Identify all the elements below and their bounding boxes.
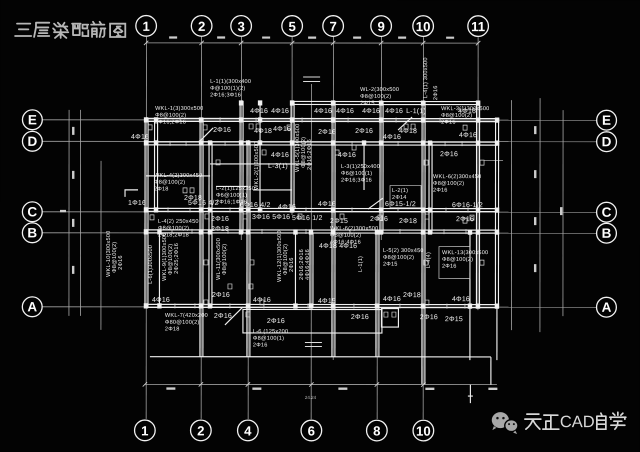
svg-text:L-5(2) 300x450: L-5(2) 300x450 [383,247,424,254]
svg-text:2Φ16: 2Φ16 [253,343,268,349]
svg-text:Φ6@100(1): Φ6@100(1) [216,192,247,199]
svg-text:L-2(1)125x350: L-2(1)125x350 [216,185,255,192]
svg-text:L-6 (125x200: L-6 (125x200 [253,328,288,335]
svg-text:Φ6@100(1): Φ6@100(1) [341,170,372,177]
svg-text:4Φ16: 4Φ16 [314,108,332,115]
svg-text:WKL-2(1)300x500: WKL-2(1)300x500 [253,142,260,190]
svg-text:4Φ16: 4Φ16 [152,297,170,304]
svg-text:L-4(2) 250x450: L-4(2) 250x450 [158,218,199,225]
svg-text:2Φ16;3Φ16: 2Φ16;3Φ16 [341,178,372,184]
svg-text:WL-2(300x500: WL-2(300x500 [360,86,399,93]
svg-text:2Φ16: 2Φ16 [289,257,295,272]
svg-text:2Φ16;2Φ16: 2Φ16;2Φ16 [307,139,313,170]
svg-text:2Φ16: 2Φ16 [267,318,285,325]
svg-text:Φ8@100(2): Φ8@100(2) [330,232,361,239]
svg-text:6Φ16-1/2: 6Φ16-1/2 [452,201,483,209]
svg-text:Φ@100(1)(2): Φ@100(1)(2) [210,85,245,92]
svg-text:2Φ16: 2Φ16 [441,120,456,126]
svg-text:6Φ15-1/2: 6Φ15-1/2 [385,200,416,208]
svg-text:2Φ15: 2Φ15 [445,316,463,323]
svg-text:Φ8@100(2): Φ8@100(2) [111,242,118,273]
svg-text:2Φ16: 2Φ16 [118,255,124,270]
svg-text:2Φ16: 2Φ16 [370,216,388,223]
svg-text:L-4(1) 300x500: L-4(1) 300x500 [422,57,429,98]
svg-text:CAD: CAD [560,413,595,431]
svg-text:4Φ16: 4Φ16 [278,204,296,211]
svg-text:C: C [27,204,37,219]
svg-text:3: 3 [237,19,244,34]
svg-text:WKL-3(1)300x500: WKL-3(1)300x500 [441,105,489,112]
svg-text:4Φ16: 4Φ16 [452,296,470,303]
svg-text:4Φ16: 4Φ16 [336,108,354,115]
svg-text:11: 11 [471,19,485,34]
svg-text:Φ8@100(1): Φ8@100(1) [253,335,284,342]
svg-text:1Φ16: 1Φ16 [128,200,146,207]
svg-text:4Φ16: 4Φ16 [318,201,336,208]
svg-text:2: 2 [198,19,205,34]
svg-text:L-1(1)(300x400: L-1(1)(300x400 [210,78,251,85]
svg-text:2Φ15: 2Φ15 [360,101,375,107]
svg-text:2Φ14: 2Φ14 [392,195,407,201]
svg-text:2Φ16;3Φ16: 2Φ16;3Φ16 [210,93,241,99]
svg-text:A: A [602,300,612,315]
svg-text:4Φ16: 4Φ16 [383,134,401,141]
svg-text:Φ8@100(2): Φ8@100(2) [167,244,174,275]
svg-text:2Φ16: 2Φ16 [355,128,373,135]
svg-text:Φ8@100(2): Φ8@100(2) [300,137,307,168]
svg-text:2: 2 [197,423,204,438]
svg-text:Φ8@100(2): Φ8@100(2) [441,112,472,119]
svg-text:E: E [28,112,37,127]
svg-text:A: A [27,299,37,314]
svg-text:6Φ16 4/2: 6Φ16 4/2 [240,201,271,209]
svg-text:WKL-5(1)300x500: WKL-5(1)300x500 [294,124,301,172]
svg-text:4Φ16: 4Φ16 [385,108,403,115]
svg-text:WKL-6(2)300x450: WKL-6(2)300x450 [433,173,481,180]
svg-text:4Φ16: 4Φ16 [273,126,291,133]
svg-text:WKL-10(300x500: WKL-10(300x500 [105,231,112,277]
svg-text:WKL-1(3)300x500: WKL-1(3)300x500 [155,105,203,112]
svg-text:2Φ16;2Φ16: 2Φ16;2Φ16 [155,119,186,125]
svg-text:4Φ16;4Φ16: 4Φ16;4Φ16 [305,249,311,280]
svg-text:WL-11(300x500: WL-11(300x500 [215,238,222,280]
svg-text:4Φ16: 4Φ16 [253,297,271,304]
svg-text:4Φ16: 4Φ16 [271,152,289,159]
svg-text:2Φ16: 2Φ16 [351,314,369,321]
svg-text:Φ8@100(2): Φ8@100(2) [383,254,414,261]
svg-text:4Φ16: 4Φ16 [338,152,356,159]
svg-text:Φ8@100(2): Φ8@100(2) [158,225,189,232]
svg-text:4Φ16: 4Φ16 [250,108,268,115]
svg-text:WKL-7(420x200: WKL-7(420x200 [165,312,208,319]
svg-text:2Φ15: 2Φ15 [330,218,348,225]
svg-text:WKL-9(1)300x500: WKL-9(1)300x500 [161,232,168,280]
svg-text:2Φ16: 2Φ16 [456,216,474,223]
svg-text:9: 9 [377,19,384,34]
svg-text:2Φ18: 2Φ18 [403,292,421,299]
svg-text:D: D [602,134,612,149]
svg-text:C: C [602,205,612,220]
svg-text:L-2(1): L-2(1) [392,187,408,194]
svg-text:2Φ16: 2Φ16 [433,188,448,194]
svg-text:4Φ15: 4Φ15 [318,298,336,305]
svg-text:5: 5 [288,19,295,34]
svg-text:1: 1 [141,423,148,438]
svg-text:Φ8@100(2): Φ8@100(2) [221,244,228,275]
svg-text:4Φ16: 4Φ16 [362,108,380,115]
svg-text:Φ8@100(2): Φ8@100(2) [360,93,391,100]
svg-text:10: 10 [416,19,431,34]
svg-text:2Φ25;2Φ16: 2Φ25;2Φ16 [174,243,180,274]
svg-text:2Φ18: 2Φ18 [154,186,169,192]
svg-text:2Φ18: 2Φ18 [165,326,180,332]
svg-text:E: E [602,113,611,128]
svg-text:2Φ18: 2Φ18 [399,218,417,225]
svg-text:WKL-4(2)300x450: WKL-4(2)300x450 [154,172,202,179]
svg-text:2Φ16: 2Φ16 [420,314,438,321]
svg-text:WKL-12(1)300x500: WKL-12(1)300x500 [276,230,283,282]
svg-text:4Φ16: 4Φ16 [459,132,477,139]
svg-text:Φ8@100(2): Φ8@100(2) [433,180,464,187]
svg-text:Φ8@100(2): Φ8@100(2) [442,256,473,263]
svg-text:2Φ16: 2Φ16 [318,129,336,136]
svg-text:L-6(1)300x500: L-6(1)300x500 [147,245,154,284]
svg-text:2Φ18: 2Φ18 [211,226,229,233]
svg-text:3Φ16 5Φ16: 3Φ16 5Φ16 [252,214,290,221]
svg-text:10: 10 [416,424,431,439]
svg-text:Φ8@100(2): Φ8@100(2) [282,244,289,275]
svg-text:2Φ16: 2Φ16 [211,216,229,223]
svg-text:L-3(1)250x400: L-3(1)250x400 [341,163,380,170]
svg-text:B: B [27,225,37,240]
svg-text:5Φ16 4/2: 5Φ16 4/2 [188,199,219,207]
svg-text:2Φ16: 2Φ16 [433,85,439,100]
svg-text:B: B [602,226,612,241]
svg-text:WKL-6(2)300x500: WKL-6(2)300x500 [330,225,378,232]
svg-text:Φ8@100(2): Φ8@100(2) [155,112,186,119]
svg-text:4Φ16: 4Φ16 [271,108,289,115]
svg-text:6: 6 [308,423,315,438]
svg-text:L-3(1): L-3(1) [268,162,288,170]
svg-text:4: 4 [244,423,252,438]
svg-text:2Φ16: 2Φ16 [214,313,232,320]
svg-text:4Φ16: 4Φ16 [131,134,149,141]
svg-text:2Φ15: 2Φ15 [383,262,398,268]
svg-text:4Φ16: 4Φ16 [383,296,401,303]
svg-text:D: D [27,134,37,149]
svg-text:2Φ16: 2Φ16 [212,292,230,299]
svg-text:2Φ16: 2Φ16 [213,127,231,134]
svg-text:8: 8 [373,424,380,439]
svg-text:4Φ18 4Φ16: 4Φ18 4Φ16 [319,243,357,250]
svg-text:L-1(1): L-1(1) [357,256,364,272]
svg-text:L-1(1): L-1(1) [406,107,426,115]
svg-text:24.24: 24.24 [305,395,317,400]
svg-text:Φ80@100(2): Φ80@100(2) [165,319,200,326]
svg-text:WKL-13(300x500: WKL-13(300x500 [442,249,488,256]
svg-text:5Φ16 1/2: 5Φ16 1/2 [292,214,323,222]
svg-text:7: 7 [329,19,336,34]
svg-text:2Φ16: 2Φ16 [442,264,457,270]
svg-text:2Φ16: 2Φ16 [440,151,458,158]
svg-text:1: 1 [142,19,149,34]
svg-text:Φ8@100(2): Φ8@100(2) [154,179,185,186]
